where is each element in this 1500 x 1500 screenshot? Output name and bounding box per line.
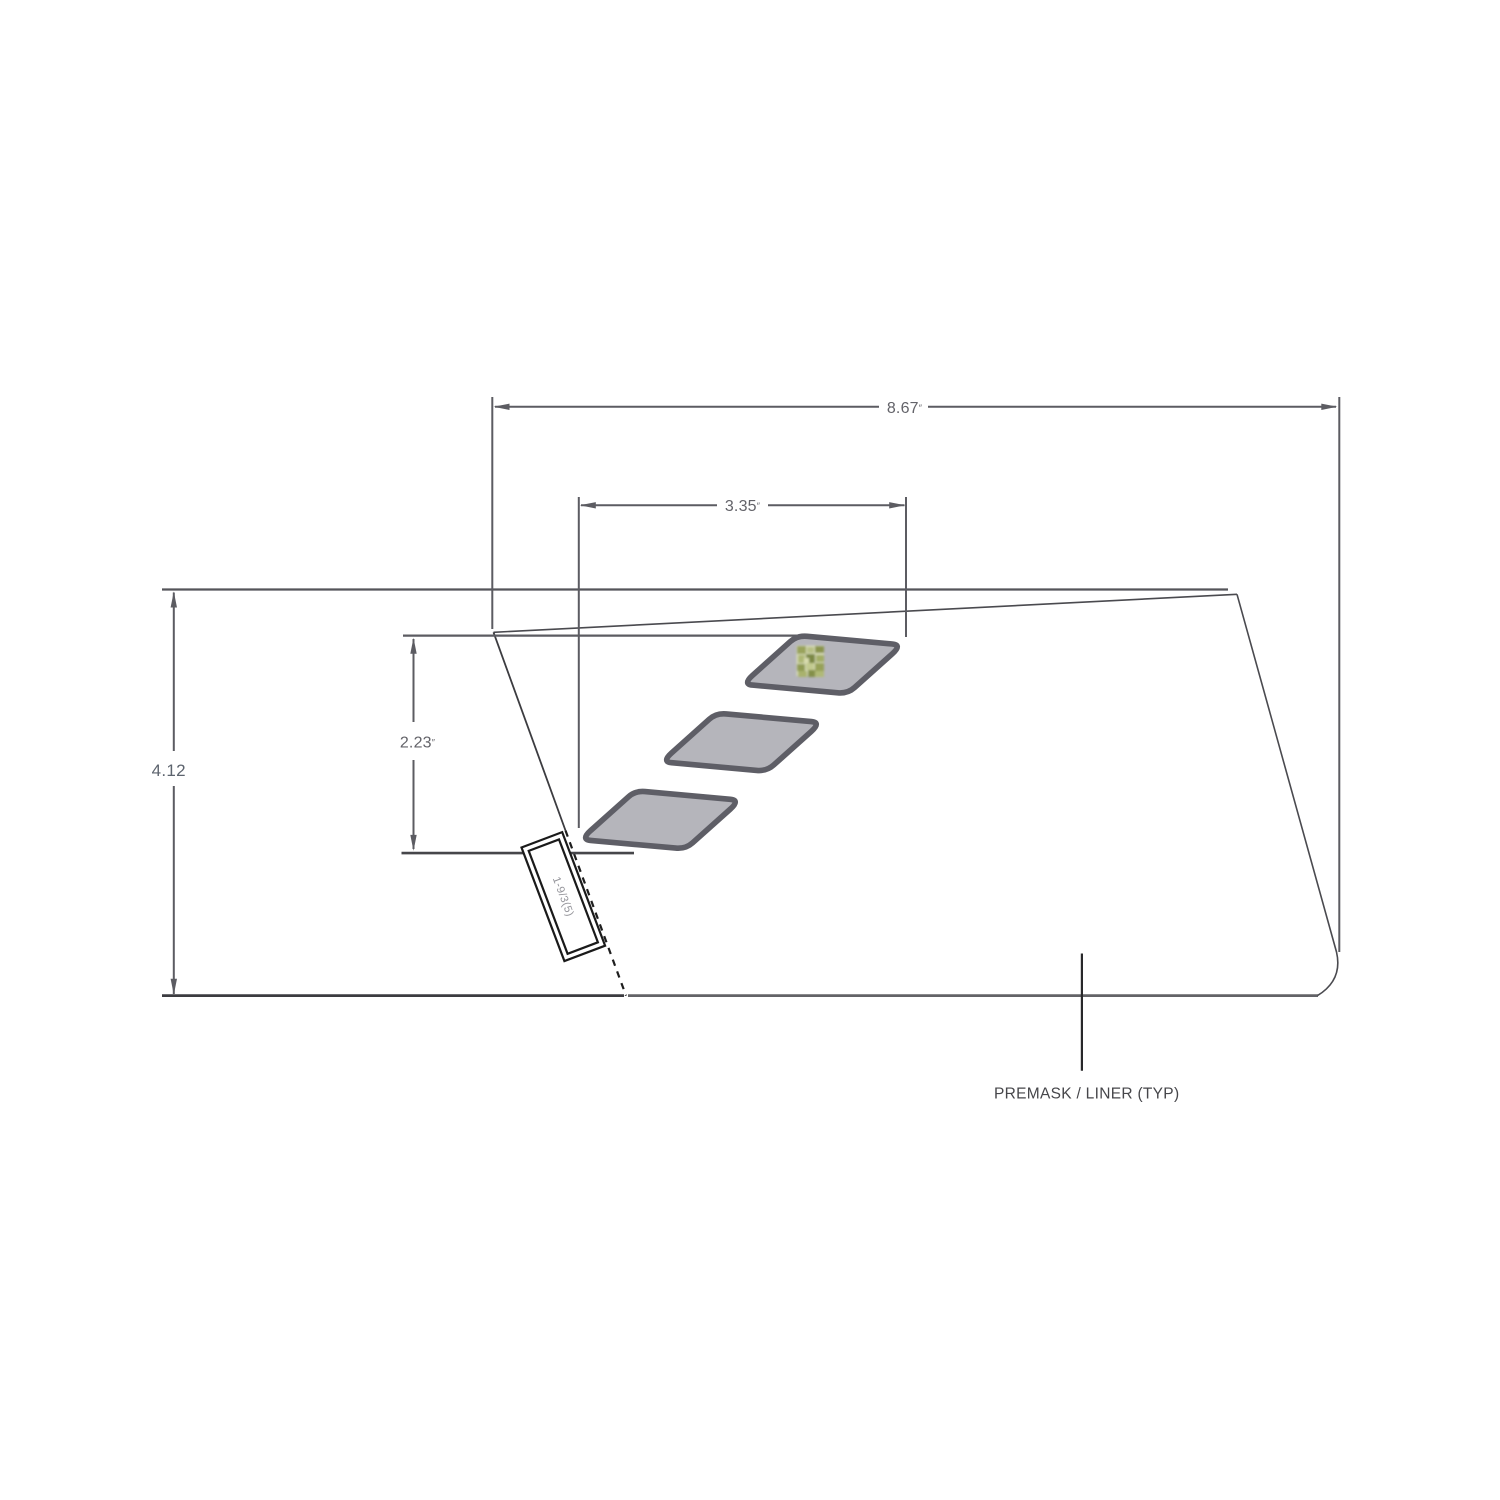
svg-text:4.12: 4.12 — [152, 761, 186, 780]
svg-text:8.67″: 8.67″ — [887, 400, 923, 417]
svg-text:PREMASK / LINER (TYP): PREMASK / LINER (TYP) — [994, 1086, 1179, 1103]
svg-text:3.35″: 3.35″ — [725, 498, 761, 515]
svg-text:2.23″: 2.23″ — [400, 735, 436, 752]
